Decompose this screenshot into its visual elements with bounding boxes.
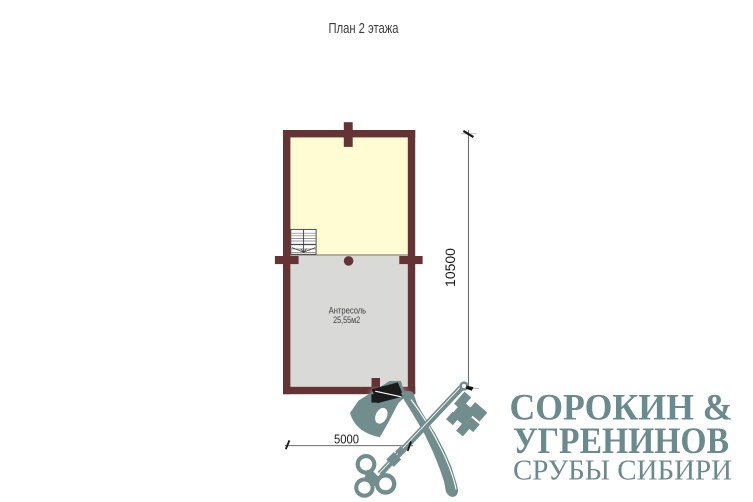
svg-text:5000: 5000 [334,431,359,446]
svg-text:План 2 этажа: План 2 этажа [329,21,399,37]
svg-text:25,55м2: 25,55м2 [333,315,360,326]
svg-text:СРУБЫ СИБИРИ: СРУБЫ СИБИРИ [513,454,732,486]
svg-text:10500: 10500 [442,248,458,287]
